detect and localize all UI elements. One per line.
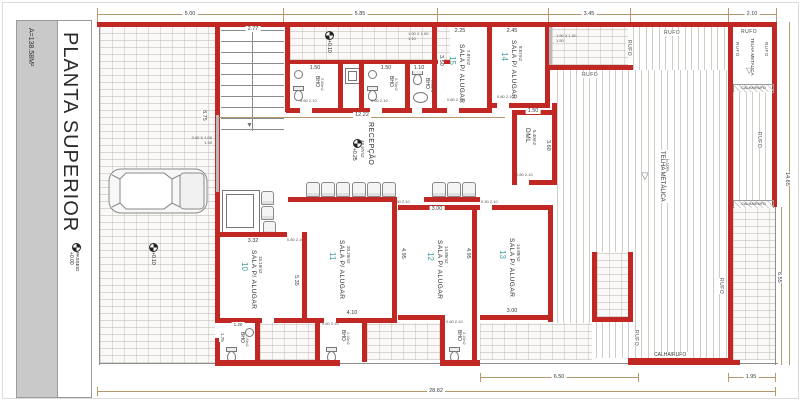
dim-bho1: 1.50 [308, 65, 323, 71]
wall-room13-right [548, 205, 553, 322]
dim-tick [728, 8, 729, 22]
dim-bho2: 1.50 [379, 65, 394, 71]
wall-bho-partition [359, 64, 364, 112]
room-name: SALA P/ ALUGAR [508, 238, 515, 297]
right-walkway-paving [733, 208, 775, 360]
door-spec-label: 0.80 2.10 [516, 173, 533, 178]
dim-left-wall: 8.75 [201, 110, 207, 121]
dim-dml: 1.50 [526, 108, 541, 114]
wall-roof-bottom [628, 358, 740, 365]
dim-room12-h2: 4.95 [465, 248, 471, 259]
dim-tick [548, 8, 549, 22]
dim-room10-h: 5.35 [293, 275, 299, 286]
dim-top-box: 2.10 [745, 11, 760, 17]
metal-roof-right-strip [733, 92, 772, 200]
dim-bath-b: 1.20 [232, 322, 245, 328]
wall-reception-south [424, 197, 480, 202]
room-name: SALA P/ ALUGAR [458, 44, 465, 103]
rufo-label: RUFO [741, 29, 757, 35]
dim-bath-b-h: 1.75 [219, 333, 225, 342]
wall-bho-partition [338, 64, 343, 112]
room-name: SALA P/ ALUGAR [436, 240, 443, 299]
rufo-label: RUFO [662, 30, 682, 36]
dim-tick [776, 8, 777, 22]
room-name: SALA P/ ALUGAR [250, 250, 257, 309]
metal-roof [557, 70, 728, 358]
roof-slope-label: i=10% [665, 159, 670, 202]
bho-area: 2.10m2 [346, 332, 350, 345]
room-number: 10 [240, 262, 249, 309]
reception-level: +0.25 [351, 148, 357, 161]
chair-icon [352, 182, 366, 197]
rufo-label: RUFO [756, 132, 762, 148]
window-sill: 1.50 [204, 140, 212, 145]
wall-bho-partition [255, 318, 260, 362]
dim-room13: 3.00 [505, 308, 520, 314]
wall-bho-partition [362, 318, 367, 362]
chair-icon [261, 206, 274, 220]
car-top-view-icon [106, 163, 210, 219]
passeio-label: PASSEIO [75, 252, 80, 271]
wall-bottom [215, 360, 340, 366]
plan-title: PLANTA SUPERIOR [58, 32, 81, 232]
wall-dml-bottom [529, 180, 557, 185]
room-area: 5.40m2 [532, 130, 537, 145]
dim-tick [97, 387, 98, 396]
walkway-paving [367, 323, 440, 360]
wall-room15-bottom [437, 108, 447, 113]
wall-courtyard-left [592, 252, 597, 322]
walkway-paving [260, 323, 315, 360]
wall-room10-top [215, 232, 287, 237]
roof-label-group: TELHA METÁLICA i=10% [658, 150, 671, 203]
window-sill: 1.50 [556, 38, 564, 43]
room-area: 8.57m2 [518, 46, 523, 99]
dim-room12: 3.00 [430, 206, 445, 212]
wall-room12-right [472, 205, 477, 362]
dim-tick [638, 373, 639, 382]
dim-room12-h: 4.95 [400, 248, 406, 259]
stair-direction-arrow: ▼ [246, 122, 253, 129]
dim-bath-row: 12.22 [353, 112, 371, 118]
dim-tick [630, 8, 631, 22]
bho-area: 2.76m2 [394, 78, 398, 91]
rufo-label: RUFO [580, 72, 600, 78]
window-strip [549, 27, 552, 65]
door-spec-label: 0.80 2.10 [447, 98, 464, 103]
dim-top-terrace: 3.45 [582, 11, 597, 17]
door-spec-label: 0.60 2.10 [322, 322, 339, 327]
level-marker-icon [72, 243, 81, 252]
room-area: 14.88m2 [516, 244, 521, 297]
dim-line-right-low [781, 207, 782, 365]
hall-level: +0.10 [326, 40, 332, 53]
wall-room15-bottom [459, 108, 492, 113]
wall-right-outer [772, 22, 777, 207]
door-spec-label: 0.60 2.10 [371, 99, 388, 104]
door-spec-label: 0.60 2.10 [446, 320, 463, 325]
room-area: 15.19m2 [258, 256, 263, 309]
chair-icon [367, 182, 381, 197]
wall-bho-partition [405, 64, 410, 112]
room-name: DML [524, 128, 531, 145]
sink-icon [368, 70, 377, 79]
rufo-label: RUFO [735, 42, 740, 57]
level-marker-icon [325, 31, 334, 40]
wall-room13-top [492, 205, 553, 210]
dim-total: 28.82 [427, 388, 445, 394]
wall-bottom [440, 360, 480, 366]
dim-right-low: 6.55 [776, 272, 782, 283]
window-strip [216, 115, 219, 192]
dim-tick [97, 8, 98, 22]
dim-room10: 3.32 [246, 238, 261, 244]
rufo-label: RUFO [764, 42, 769, 57]
dim-tick [283, 8, 284, 22]
slope-arrow-icon: ▽ [746, 66, 752, 76]
door-spec-label: 0.90 2.10 [481, 200, 498, 205]
wall-bath-row [286, 108, 300, 113]
dim-bottom-right: 1.95 [744, 374, 759, 380]
wall-bath-row [422, 108, 437, 113]
wall-reception-south [288, 197, 392, 202]
plan-area-label: A=138.58M² [27, 28, 34, 66]
door-spec-label: 0.60 2.10 [300, 99, 317, 104]
window-spec-label: 3.00 X 1.00 1.50 [186, 136, 212, 145]
wall-room14-bottom [492, 103, 497, 108]
dim-tick [437, 8, 438, 22]
shaft-box-inner [348, 71, 357, 81]
wall-bho-partition [440, 315, 445, 362]
wall-under-hall [286, 60, 450, 64]
chair-icon [382, 182, 396, 197]
sink-icon [294, 70, 303, 79]
room-number: 13 [498, 250, 507, 297]
rufo-label: RUFO [626, 40, 632, 56]
bho-area: 2.04m2 [430, 80, 434, 93]
chair-icon [306, 182, 320, 197]
room-number: 12 [426, 252, 435, 299]
reception-desk-inner [226, 194, 254, 228]
dim-bho3: 1.10 [412, 65, 427, 71]
room-number: 14 [500, 52, 509, 99]
dim-right-full: 14.65 [784, 172, 790, 186]
chair-icon [462, 182, 476, 197]
dim-room15-h: 3.50 [438, 55, 444, 66]
dim-top-hall: 5.85 [353, 11, 368, 17]
bho-area: 2.10m2 [462, 332, 466, 345]
dim-bottom-mid: 6.50 [552, 374, 567, 380]
dim-room15: 2.25 [453, 28, 468, 34]
wall-room11-right [392, 197, 397, 322]
calha-rufo-label: CALHA/RUFO [652, 352, 688, 358]
title-block-gray-bar [16, 20, 58, 398]
dim-stairs: 2.77 [246, 26, 261, 32]
rufo-label: RUFO [718, 278, 724, 294]
toilet-icon [413, 74, 422, 85]
sink-icon [245, 328, 254, 337]
wall-room15-left [432, 22, 437, 112]
wall-room15-right [487, 22, 492, 108]
wall-bath-row [382, 108, 412, 113]
room-area: 14.85m2 [444, 246, 449, 299]
room-number: 11 [328, 252, 337, 299]
reception-name: RECEPÇÃO [367, 122, 374, 165]
dim-tick [728, 373, 729, 382]
dim-dml-h: 3.60 [545, 140, 551, 151]
wall-courtyard-bottom [592, 317, 633, 322]
chair-icon [447, 182, 461, 197]
reception-area: 48.97m2 [360, 140, 365, 158]
dim-top-parking: 5.00 [183, 11, 198, 17]
room-area: 7.87m2 [466, 50, 471, 103]
chair-icon [321, 182, 335, 197]
slope-arrow-icon: ▽ [641, 172, 649, 182]
dim-line-right-full [789, 22, 790, 365]
chair-icon [261, 191, 274, 205]
shower-base-icon [413, 92, 428, 103]
wall-room13-bottom [480, 315, 553, 320]
dim-room11: 4.10 [345, 310, 360, 316]
courtyard-paving [597, 252, 628, 317]
passeio-level: +0.00 [68, 252, 74, 265]
garage-level: +0.10 [150, 252, 156, 265]
wall-room12-bottom [398, 315, 442, 320]
dim-room14: 2.45 [505, 28, 520, 34]
dim-tick [775, 373, 776, 382]
dim-tick [775, 387, 776, 396]
room-area: 20.29m2 [346, 246, 351, 299]
walkway-paving [480, 323, 592, 360]
room-name: SALA P/ ALUGAR [510, 40, 517, 99]
window-sill: 1.10 [408, 36, 416, 41]
floor-plan-sheet: A=138.58M² PLANTA SUPERIOR +0.00 PASSEIO… [0, 0, 800, 400]
dim-tick [480, 373, 481, 382]
door-spec-label: 0.80 2.10 [497, 95, 514, 100]
rufo-label: RUFO [633, 330, 639, 346]
wall-bho-partition [315, 318, 320, 362]
room-name: SALA P/ ALUGAR [338, 240, 345, 299]
chair-icon [432, 182, 446, 197]
chair-icon [336, 182, 350, 197]
bho-area: 2.50m2 [320, 78, 324, 91]
lot-line-right [775, 207, 776, 365]
wall-courtyard-right [628, 252, 633, 322]
level-marker-icon [149, 243, 158, 252]
